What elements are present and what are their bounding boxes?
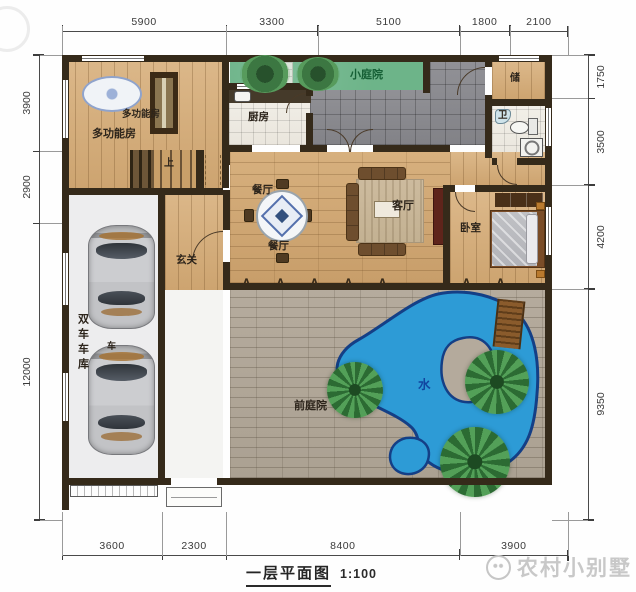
extension-line (552, 98, 588, 99)
wooden-bridge (493, 299, 526, 350)
dimension-segment: 2900 (16, 151, 40, 223)
extension-line (40, 151, 62, 152)
casement-window-icon: ∧ (276, 275, 285, 285)
dimension-line-left: 3900290012000 (16, 55, 40, 520)
stairs-up-label: 上 (164, 159, 174, 170)
dimension-segment: 4200 (588, 185, 612, 289)
wall-segment (223, 478, 545, 485)
wall-segment (223, 152, 230, 165)
casement-window-icon: ∧ (496, 275, 505, 285)
room-label-small-courtyard: 小庭院 (350, 70, 383, 82)
wall-segment (300, 145, 327, 152)
toilet-bowl (510, 121, 529, 134)
wall-segment (62, 478, 165, 485)
wall-segment (306, 113, 313, 145)
dining-chair (276, 179, 289, 189)
floor-plan-page: 59003300510018002100 3900290012000 17503… (0, 0, 636, 592)
washing-machine (520, 138, 543, 157)
casement-window-icon: ∧ (378, 275, 387, 285)
wall-segment (450, 185, 455, 192)
courtyard-bush (296, 57, 340, 91)
wall-segment (229, 145, 252, 152)
dimension-value: 3600 (62, 540, 162, 552)
bed-pillows (526, 214, 538, 264)
nightstand (536, 270, 545, 278)
extension-line (318, 26, 319, 56)
extension-line (552, 185, 588, 186)
extension-line (552, 520, 588, 521)
extension-line (226, 26, 227, 56)
sofa (346, 183, 359, 241)
extension-line (62, 26, 63, 56)
dimension-value: 12000 (21, 357, 33, 386)
dimension-segment: 8400 (226, 530, 460, 556)
faint-watermark-circle (0, 6, 30, 52)
room-label-foyer: 玄关 (176, 255, 197, 266)
stair-projection-dashes (205, 155, 221, 185)
wall-segment (492, 158, 497, 165)
car-top-view (88, 225, 155, 329)
dimension-value: 4200 (595, 225, 607, 248)
kitchen-sink (234, 91, 251, 102)
drawing-scale: 1:100 (340, 567, 377, 581)
extension-line (62, 512, 63, 556)
dimension-segment: 3500 (588, 98, 612, 185)
dimension-value: 3900 (460, 540, 568, 552)
window (63, 373, 68, 421)
dimension-line-top: 59003300510018002100 (62, 6, 568, 32)
sofa (358, 167, 406, 180)
dimension-value: 3900 (21, 92, 33, 115)
courtyard-bush (240, 55, 290, 93)
nightstand (536, 202, 545, 210)
extension-line (568, 512, 569, 556)
dimension-value: 1800 (460, 16, 510, 28)
room-label-kitchen: 厨房 (248, 112, 269, 123)
dimension-value: 2100 (510, 16, 568, 28)
wall-segment (492, 99, 545, 106)
room-label-living: 客厅 (392, 201, 414, 213)
pond-water-label: 水 (418, 379, 431, 392)
dimension-segment: 3300 (226, 6, 318, 32)
dining-chair (276, 253, 289, 263)
dimension-segment: 2100 (510, 6, 568, 32)
extension-line (162, 512, 163, 556)
casement-window-icon: ∧ (462, 275, 471, 285)
extension-line (40, 223, 62, 224)
room-label-multifunction-2: 多功能房 (122, 110, 160, 120)
dimension-segment: 9350 (588, 289, 612, 520)
dimension-value: 1750 (595, 65, 607, 88)
extension-line (460, 512, 461, 556)
extension-line (460, 26, 461, 56)
room-label-dining-a: 餐厅 (252, 185, 273, 196)
room-label-storage: 储 (510, 74, 520, 85)
brand-watermark: 农村小别墅 (486, 552, 632, 582)
dimension-segment: 2300 (162, 530, 226, 556)
drawing-title-block: 一层平面图 1:100 (246, 562, 377, 587)
wall-segment (223, 262, 230, 290)
dimension-value: 2900 (21, 176, 33, 199)
window (63, 253, 68, 305)
dimension-value: 5100 (318, 16, 460, 28)
wall-segment (485, 95, 492, 158)
dining-chair (244, 209, 254, 222)
casement-window-icon: ∧ (242, 275, 251, 285)
walkway-floor (165, 290, 223, 478)
staircase (130, 150, 196, 188)
dimension-segment: 5100 (318, 6, 460, 32)
car-top-view (88, 345, 155, 455)
dimension-value: 3500 (595, 130, 607, 153)
gate-post (165, 478, 171, 485)
wall-segment (306, 90, 313, 96)
palm-tree (440, 427, 510, 497)
extension-line (552, 289, 588, 290)
dimension-segment: 1750 (588, 55, 612, 98)
room-label-bedroom: 卧室 (460, 223, 481, 234)
dimension-segment: 3600 (62, 530, 162, 556)
wall-segment (158, 188, 165, 485)
dimension-line-right: 1750350042009350 (588, 55, 612, 520)
dimension-segment: 3900 (16, 55, 40, 151)
room-label-dining-b: 餐厅 (268, 241, 289, 252)
extension-line (40, 55, 62, 56)
room-label-bathroom: 卫 (498, 111, 508, 121)
brand-name: 农村小别墅 (517, 552, 632, 582)
extension-line (552, 55, 588, 56)
decorative-rug (82, 76, 142, 112)
toilet-tank (528, 118, 538, 135)
sofa (358, 243, 406, 256)
extension-line (568, 26, 569, 56)
wall-segment (443, 185, 450, 290)
room-label-front-courtyard: 前庭院 (294, 401, 327, 413)
wall-segment (373, 145, 450, 152)
dimension-segment: 5900 (62, 6, 226, 32)
dimension-value: 2300 (162, 540, 226, 552)
display-cabinet (150, 72, 178, 134)
dimension-value: 3300 (226, 16, 318, 28)
window (546, 207, 551, 255)
wall-segment (423, 62, 430, 93)
palm-tree (327, 362, 383, 418)
dimension-value: 5900 (62, 16, 226, 28)
floor-plan: ∧ ∧ ∧ ∧ ∧ ∧ ∧ (62, 55, 552, 510)
room-label-multifunction: 多功能房 (92, 129, 136, 141)
wall-segment (475, 185, 545, 192)
wall-segment (517, 158, 545, 165)
palm-tree (465, 350, 529, 414)
room-label-garage: 双车车库 (76, 313, 88, 405)
casement-window-icon: ∧ (344, 275, 353, 285)
dining-table (256, 190, 308, 242)
dimension-value: 9350 (595, 393, 607, 416)
dimension-segment: 1800 (460, 6, 510, 32)
window (546, 108, 551, 146)
wall-segment (196, 150, 204, 188)
wall-segment (223, 190, 230, 230)
wall-segment (485, 55, 492, 67)
extension-line (510, 26, 511, 56)
garage-car-char: 车 (107, 342, 116, 351)
garage-door (70, 485, 158, 497)
casement-window-icon: ∧ (310, 275, 319, 285)
window (63, 80, 68, 138)
window (82, 56, 144, 61)
wall-segment (222, 55, 229, 188)
drawing-title: 一层平面图 (246, 562, 331, 587)
dimension-segment: 12000 (16, 223, 40, 520)
entrance-step (166, 487, 222, 507)
extension-line (40, 520, 62, 521)
window (499, 56, 539, 61)
gate-post (217, 478, 223, 485)
wall-segment (62, 188, 223, 195)
dimension-value: 8400 (226, 540, 460, 552)
extension-line (226, 512, 227, 556)
brand-logo-icon (486, 555, 511, 580)
